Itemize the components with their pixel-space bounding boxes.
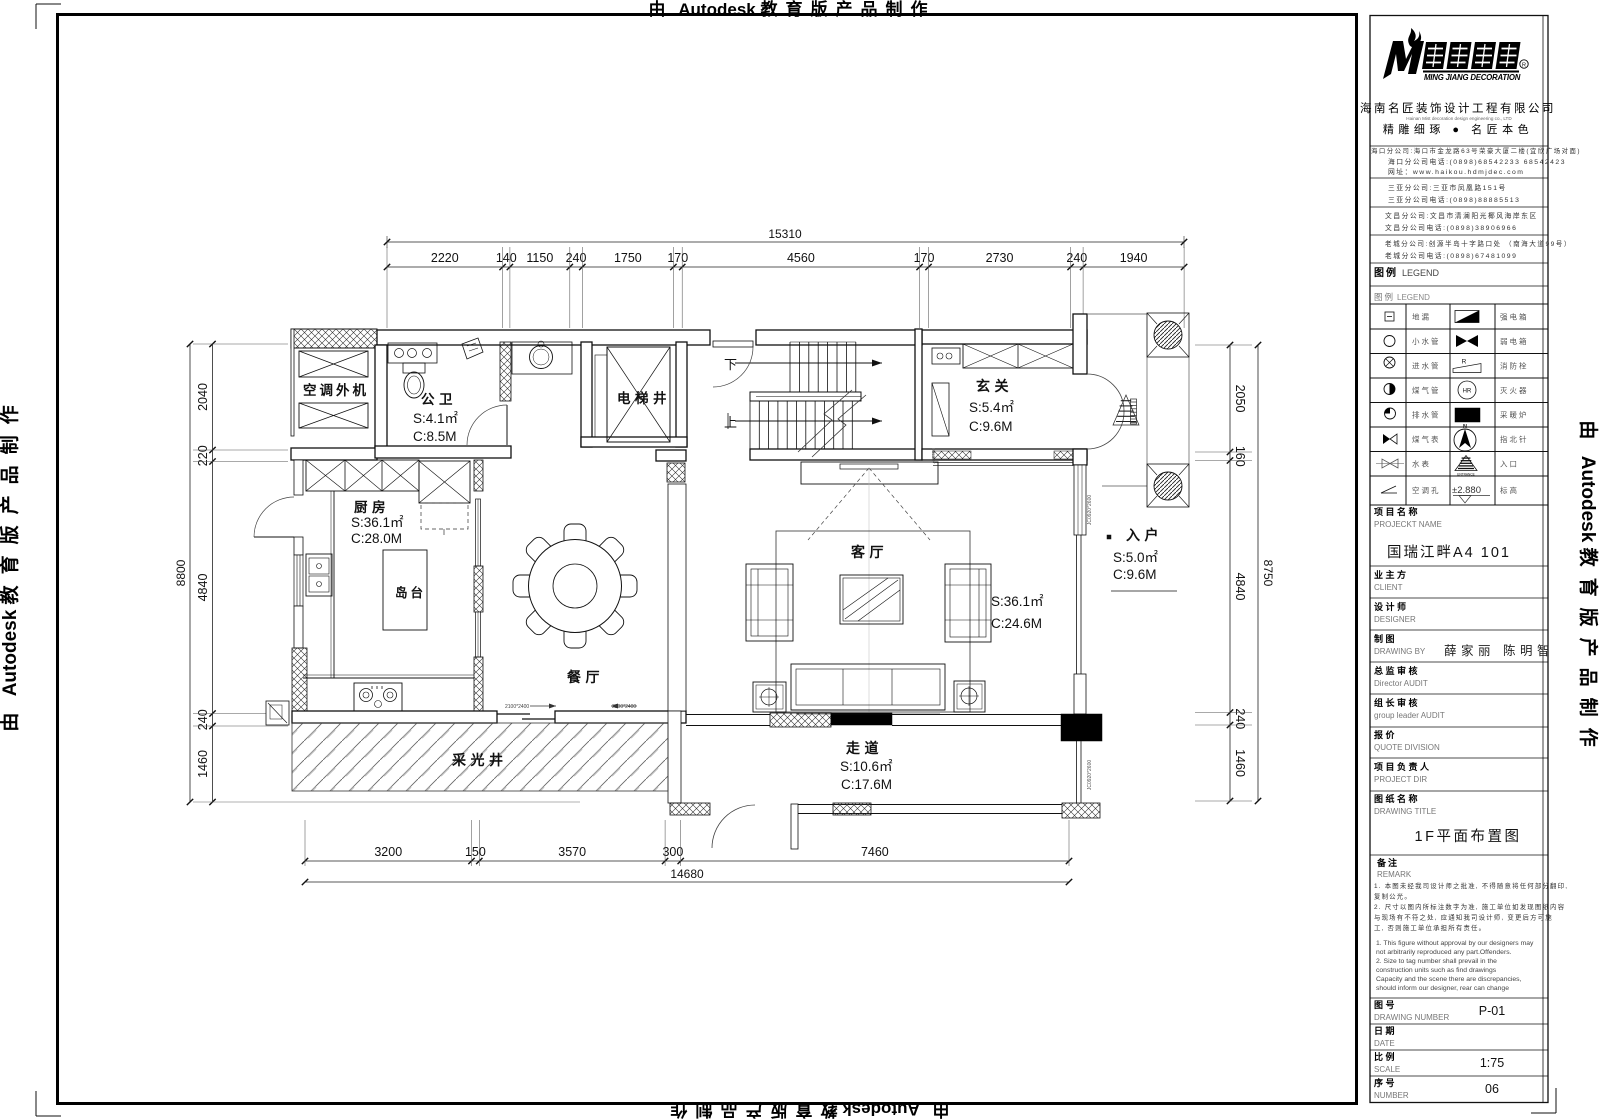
svg-text:电梯井: 电梯井 bbox=[617, 390, 671, 406]
svg-text:DATE: DATE bbox=[1374, 1039, 1395, 1048]
svg-text:JC0920*2600: JC0920*2600 bbox=[1087, 760, 1093, 791]
svg-text:PROJECT DIR: PROJECT DIR bbox=[1374, 775, 1427, 784]
svg-text:2. Size to tag number shall pr: 2. Size to tag number shall prevail in t… bbox=[1376, 958, 1497, 965]
svg-text:HR: HR bbox=[1463, 389, 1472, 395]
svg-text:240: 240 bbox=[1066, 251, 1087, 265]
svg-text:170: 170 bbox=[667, 251, 688, 265]
svg-text:CLIENT: CLIENT bbox=[1374, 583, 1403, 592]
svg-text:C:28.0M: C:28.0M bbox=[351, 531, 402, 546]
svg-text:采暖炉: 采暖炉 bbox=[1500, 410, 1529, 420]
svg-text:2040: 2040 bbox=[196, 383, 210, 411]
svg-text:玄关: 玄关 bbox=[976, 378, 1013, 394]
svg-text:170: 170 bbox=[914, 251, 935, 265]
svg-text:老城分公司电话:(0898)67481099: 老城分公司电话:(0898)67481099 bbox=[1385, 251, 1517, 260]
svg-text:SCALE: SCALE bbox=[1374, 1065, 1400, 1074]
svg-text:三亚分公司电话:(0898)88885513: 三亚分公司电话:(0898)88885513 bbox=[1388, 195, 1520, 204]
svg-text:设计师: 设计师 bbox=[1374, 601, 1409, 612]
svg-text:DESIGNER: DESIGNER bbox=[1374, 615, 1416, 624]
svg-text:C:24.6M: C:24.6M bbox=[991, 616, 1042, 631]
svg-text:由 Autodesk 教育版产品制作: 由 Autodesk 教育版产品制作 bbox=[1577, 420, 1600, 757]
svg-text:指北针: 指北针 bbox=[1500, 434, 1529, 444]
svg-text:±2.880: ±2.880 bbox=[1452, 485, 1481, 496]
svg-text:报价: 报价 bbox=[1374, 729, 1397, 740]
svg-text:复制公光。: 复制公光。 bbox=[1374, 892, 1412, 901]
svg-text:P-01: P-01 bbox=[1479, 1004, 1505, 1018]
svg-text:走道: 走道 bbox=[846, 740, 883, 756]
svg-text:组长审核: 组长审核 bbox=[1374, 697, 1420, 708]
svg-text:1. This figure without approva: 1. This figure without approval by our d… bbox=[1376, 940, 1534, 947]
svg-text:由 Autodesk 教育版产品制作: 由 Autodesk 教育版产品制作 bbox=[0, 394, 21, 731]
svg-text:海南名匠装饰设计工程有限公司: 海南名匠装饰设计工程有限公司 bbox=[1360, 101, 1556, 115]
svg-text:14680: 14680 bbox=[670, 867, 704, 881]
svg-text:160: 160 bbox=[1233, 446, 1247, 467]
svg-text:4560: 4560 bbox=[787, 251, 815, 265]
svg-text:三亚分公司:三亚市凤凰路151号: 三亚分公司:三亚市凤凰路151号 bbox=[1388, 183, 1507, 192]
svg-text:空调外机: 空调外机 bbox=[303, 382, 369, 398]
svg-text:R: R bbox=[1522, 63, 1526, 69]
svg-text:1:75: 1:75 bbox=[1480, 1056, 1504, 1070]
svg-text:15310: 15310 bbox=[768, 227, 802, 241]
svg-text:1750: 1750 bbox=[614, 251, 642, 265]
svg-text:140: 140 bbox=[496, 251, 517, 265]
svg-text:海口分公司电话:(0898)68542233 6854242: 海口分公司电话:(0898)68542233 68542423 bbox=[1388, 157, 1566, 166]
svg-text:煤气表: 煤气表 bbox=[1412, 434, 1441, 444]
svg-text:1F平面布置图: 1F平面布置图 bbox=[1415, 828, 1522, 845]
svg-text:S:4.1㎡: S:4.1㎡ bbox=[413, 411, 459, 426]
svg-text:group leader AUDIT: group leader AUDIT bbox=[1374, 711, 1445, 720]
svg-text:空调孔: 空调孔 bbox=[1412, 485, 1441, 495]
svg-text:制图: 制图 bbox=[1374, 633, 1397, 644]
svg-text:下: 下 bbox=[724, 357, 737, 372]
svg-text:240: 240 bbox=[566, 251, 587, 265]
svg-text:ENTRANCE: ENTRANCE bbox=[1457, 473, 1475, 477]
svg-text:7460: 7460 bbox=[861, 845, 889, 859]
svg-text:2100*2400: 2100*2400 bbox=[505, 704, 529, 710]
svg-text:总监审核: 总监审核 bbox=[1374, 665, 1420, 676]
svg-text:图例: 图例 bbox=[1374, 292, 1395, 302]
svg-text:8750: 8750 bbox=[1261, 560, 1275, 587]
svg-text:项目名称: 项目名称 bbox=[1374, 506, 1420, 517]
svg-text:采光井: 采光井 bbox=[451, 752, 508, 768]
svg-text:2. 尺寸以图内所标注数字为准, 施工单位如发现图纸内容: 2. 尺寸以图内所标注数字为准, 施工单位如发现图纸内容 bbox=[1374, 902, 1565, 911]
svg-text:入口: 入口 bbox=[1500, 460, 1519, 469]
svg-text:150: 150 bbox=[465, 845, 486, 859]
svg-text:图例: 图例 bbox=[1374, 266, 1398, 279]
svg-text:公卫: 公卫 bbox=[421, 392, 457, 407]
svg-text:排水管: 排水管 bbox=[1412, 410, 1441, 420]
svg-text:QUOTE DIVISION: QUOTE DIVISION bbox=[1374, 743, 1440, 752]
svg-text:Hainan Mist decoration design: Hainan Mist decoration design engineerin… bbox=[1406, 116, 1512, 121]
svg-text:弱电箱: 弱电箱 bbox=[1500, 336, 1529, 346]
svg-text:3200: 3200 bbox=[374, 845, 402, 859]
svg-text:C:17.6M: C:17.6M bbox=[841, 777, 892, 792]
svg-text:300: 300 bbox=[662, 845, 683, 859]
svg-text:S:5.0㎡: S:5.0㎡ bbox=[1113, 550, 1159, 565]
svg-text:文昌分公司:文昌市清澜阳光椰风海岸东区: 文昌分公司:文昌市清澜阳光椰风海岸东区 bbox=[1385, 211, 1538, 220]
svg-text:2220: 2220 bbox=[431, 251, 459, 265]
svg-text:not arbitrarily reproduced any: not arbitrarily reproduced any part.Offe… bbox=[1376, 949, 1512, 956]
svg-text:餐厅: 餐厅 bbox=[566, 669, 604, 685]
svg-text:文昌分公司电话:(0898)38906966: 文昌分公司电话:(0898)38906966 bbox=[1385, 223, 1517, 232]
svg-text:4840: 4840 bbox=[1233, 573, 1247, 601]
svg-text:NUMBER: NUMBER bbox=[1374, 1091, 1409, 1100]
svg-text:2050: 2050 bbox=[1233, 385, 1247, 413]
svg-text:Capacity and the scene there a: Capacity and the scene there are discrep… bbox=[1376, 976, 1522, 983]
svg-text:客厅: 客厅 bbox=[850, 544, 888, 560]
svg-text:4840: 4840 bbox=[196, 574, 210, 602]
svg-text:1150: 1150 bbox=[526, 251, 553, 265]
svg-text:JC0920*2600: JC0920*2600 bbox=[1087, 495, 1093, 526]
svg-text:240: 240 bbox=[1233, 708, 1247, 729]
svg-text:N: N bbox=[1463, 424, 1467, 430]
svg-text:日期: 日期 bbox=[1374, 1025, 1397, 1036]
svg-text:LEGEND: LEGEND bbox=[1397, 293, 1430, 302]
svg-text:厨房: 厨房 bbox=[354, 499, 390, 515]
svg-text:06: 06 bbox=[1485, 1082, 1499, 1096]
svg-text:construction units such as fin: construction units such as find drawings bbox=[1376, 967, 1497, 974]
svg-text:MING JIANG DECORATION: MING JIANG DECORATION bbox=[1424, 73, 1521, 82]
svg-text:煤气管: 煤气管 bbox=[1412, 385, 1441, 395]
svg-text:标高: 标高 bbox=[1500, 485, 1519, 495]
svg-text:C:9.6M: C:9.6M bbox=[969, 419, 1013, 434]
svg-text:1460: 1460 bbox=[1233, 749, 1247, 777]
svg-text:小水管: 小水管 bbox=[1412, 336, 1441, 346]
svg-text:C:8.5M: C:8.5M bbox=[413, 429, 457, 444]
svg-text:PROJECKT NAME: PROJECKT NAME bbox=[1374, 520, 1442, 529]
svg-text:上: 上 bbox=[724, 415, 737, 430]
svg-text:灭火器: 灭火器 bbox=[1500, 386, 1529, 395]
svg-text:REMARK: REMARK bbox=[1377, 870, 1412, 879]
svg-text:业主方: 业主方 bbox=[1374, 569, 1409, 580]
svg-text:DRAWING NUMBER: DRAWING NUMBER bbox=[1374, 1013, 1449, 1022]
svg-text:220: 220 bbox=[196, 445, 210, 466]
svg-text:DRAWING TITLE: DRAWING TITLE bbox=[1374, 807, 1436, 816]
svg-text:老城分公司:创源半岛十字路口处 （南海大道99号）: 老城分公司:创源半岛十字路口处 （南海大道99号） bbox=[1385, 239, 1572, 248]
svg-text:序号: 序号 bbox=[1374, 1077, 1397, 1088]
svg-text:进水管: 进水管 bbox=[1412, 361, 1441, 371]
svg-text:S:36.1㎡: S:36.1㎡ bbox=[351, 515, 404, 530]
svg-text:消防栓: 消防栓 bbox=[1500, 361, 1529, 371]
svg-text:1940: 1940 bbox=[1120, 251, 1148, 265]
svg-text:JC0920: JC0920 bbox=[931, 448, 936, 464]
svg-text:S:5.4㎡: S:5.4㎡ bbox=[969, 400, 1015, 415]
svg-text:比例: 比例 bbox=[1374, 1051, 1397, 1062]
svg-text:S:36.1㎡: S:36.1㎡ bbox=[991, 594, 1044, 609]
svg-text:3570: 3570 bbox=[558, 845, 586, 859]
svg-text:8800: 8800 bbox=[174, 559, 188, 586]
svg-text:240: 240 bbox=[196, 709, 210, 730]
svg-text:S:10.6㎡: S:10.6㎡ bbox=[840, 759, 893, 774]
svg-text:LEGEND: LEGEND bbox=[1402, 268, 1440, 278]
svg-text:工, 否则施工单位承担所有责任。: 工, 否则施工单位承担所有责任。 bbox=[1374, 923, 1486, 932]
svg-text:2730: 2730 bbox=[986, 251, 1014, 265]
svg-text:图纸名称: 图纸名称 bbox=[1374, 793, 1420, 804]
svg-text:R: R bbox=[1462, 359, 1467, 366]
svg-text:由 Autodesk 教育版产品制作: 由 Autodesk 教育版产品制作 bbox=[663, 1100, 950, 1120]
svg-text:水表: 水表 bbox=[1412, 459, 1431, 469]
svg-text:薛家丽 陈明智: 薛家丽 陈明智 bbox=[1444, 643, 1554, 658]
svg-text:备注: 备注 bbox=[1376, 857, 1399, 868]
svg-text:地漏: 地漏 bbox=[1412, 312, 1431, 322]
svg-text:入户: 入户 bbox=[1126, 527, 1163, 543]
svg-text:与现场有不符之处, 应通知我司设计师, 变更后方可施: 与现场有不符之处, 应通知我司设计师, 变更后方可施 bbox=[1374, 913, 1553, 922]
svg-text:图号: 图号 bbox=[1374, 1000, 1397, 1010]
svg-text:1460: 1460 bbox=[196, 750, 210, 778]
svg-text:Director AUDIT: Director AUDIT bbox=[1374, 679, 1428, 688]
svg-text:强电箱: 强电箱 bbox=[1500, 312, 1529, 322]
svg-text:DRAWING BY: DRAWING BY bbox=[1374, 647, 1426, 656]
svg-text:1. 本图未经我司设计师之批准, 不得随意将任何部分翻印,: 1. 本图未经我司设计师之批准, 不得随意将任何部分翻印, bbox=[1374, 881, 1568, 890]
svg-text:海口分公司:海口市金龙路63号荣豪大厦二楼(宜欣广场对面): 海口分公司:海口市金龙路63号荣豪大厦二楼(宜欣广场对面) bbox=[1371, 146, 1581, 155]
svg-text:国瑞江畔A4 101: 国瑞江畔A4 101 bbox=[1387, 544, 1511, 561]
svg-text:网址：www.haikou.hdmjdec.com: 网址：www.haikou.hdmjdec.com bbox=[1388, 167, 1524, 176]
svg-text:项目负责人: 项目负责人 bbox=[1374, 761, 1432, 772]
svg-text:岛台: 岛台 bbox=[395, 585, 426, 600]
svg-text:精雕细琢 ● 名匠本色: 精雕细琢 ● 名匠本色 bbox=[1383, 122, 1533, 136]
svg-text:由 Autodesk 教育版产品制作: 由 Autodesk 教育版产品制作 bbox=[649, 0, 936, 19]
svg-text:C:9.6M: C:9.6M bbox=[1113, 567, 1157, 582]
svg-text:should inform our designer, re: should inform our designer, rear can cha… bbox=[1376, 985, 1509, 992]
